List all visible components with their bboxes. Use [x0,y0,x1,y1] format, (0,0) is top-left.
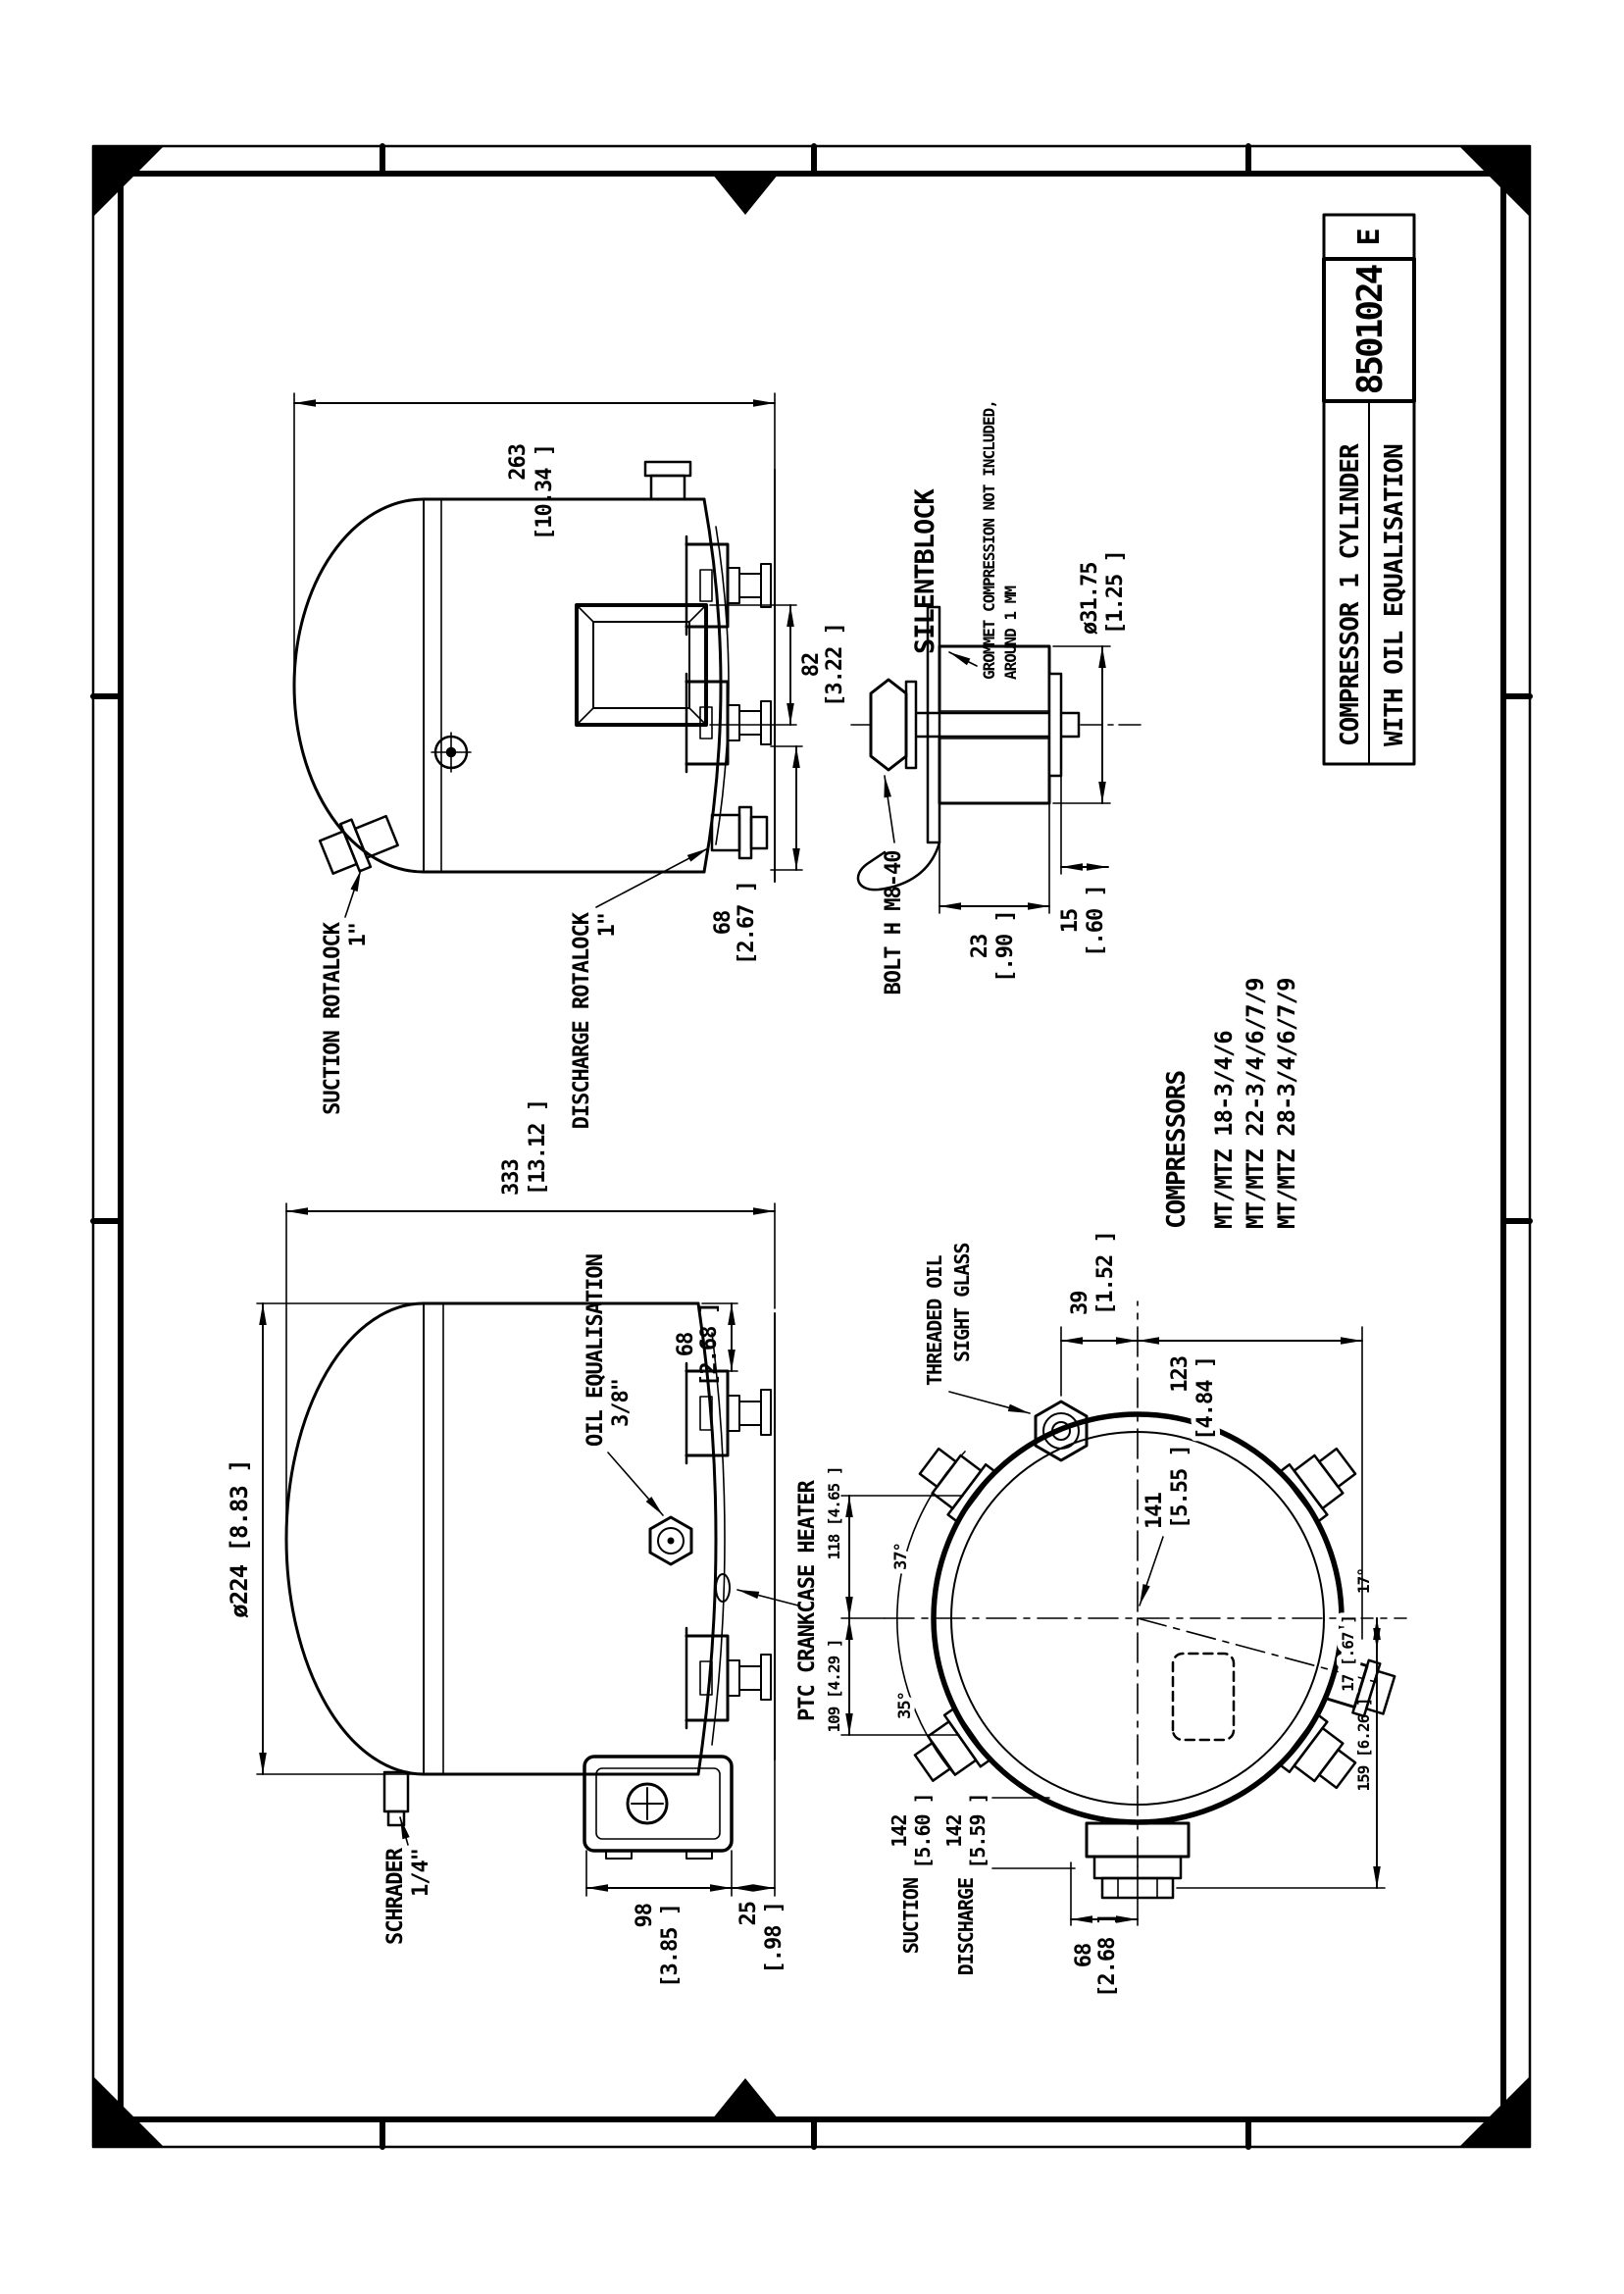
svg-text:333: 333 [499,1159,524,1196]
suction-rotalock-fitting [317,807,401,881]
oil-equalisation-fitting [650,1517,691,1564]
svg-text:109 [4.29 ]: 109 [4.29 ] [825,1640,843,1733]
svg-text:THREADED OIL: THREADED OIL [923,1255,946,1386]
revision-code: E [1352,229,1387,245]
dim-grommet-height: 23 [.90 ] [939,803,1049,983]
corner-mark [93,2076,164,2147]
svg-text:98: 98 [633,1904,657,1928]
drawing-page: COMPRESSOR 1 CYLINDER WITH OIL EQUALISAT… [0,0,1624,2294]
svg-text:DISCHARGE: DISCHARGE [954,1878,978,1975]
svg-text:1": 1" [595,913,620,938]
service-valve-stub [645,462,690,499]
dim-terminal-height: 98 [3.85 ] 25 [.98 ] [586,1759,787,1988]
svg-text:[.90 ]: [.90 ] [993,910,1018,982]
mounting-feet-b [686,1363,771,1728]
centering-mark [712,2078,779,2119]
port-height-labels: SUCTION 142 [5.60 ] DISCHARGE 142 [5.59 … [888,1793,1075,1975]
svg-text:[5.60 ]: [5.60 ] [911,1793,935,1868]
dim-discharge-offset: 17 [.67 ] 17° [1339,1568,1377,1692]
silentblock-heading: SILENTBLOCK [910,487,940,654]
svg-text:ø31.75: ø31.75 [1078,563,1102,635]
drawing-number: 8501024 [1350,264,1391,394]
svg-text:159 [6.26 ]: 159 [6.26 ] [1354,1699,1373,1792]
dim-terminal-box: 82 [3.22 ] [710,605,847,725]
border-ticks [93,146,1530,2147]
svg-text:[5.55 ]: [5.55 ] [1168,1445,1193,1529]
side-view-b: ø224 [8.83 ] 333 [13.12 ] 68 [2.68 ] 98 … [226,1099,820,1988]
bolt-label: BOLT H M8-40 [882,776,906,994]
suction-rotalock-label: SUCTION ROTALOCK 1" [321,870,371,1115]
title-block: COMPRESSOR 1 CYLINDER WITH OIL EQUALISAT… [1324,215,1414,764]
sight-glass-label: THREADED OIL SIGHT GLASS [923,1244,1030,1413]
svg-text:AROUND 1 MM: AROUND 1 MM [1001,586,1020,680]
discharge-rotalock-label: DISCHARGE ROTALOCK 1" [570,848,708,1129]
drawing-sheet: COMPRESSOR 1 CYLINDER WITH OIL EQUALISAT… [0,0,1624,2294]
hidden-terminal-box [1173,1654,1234,1740]
svg-text:SUCTION ROTALOCK: SUCTION ROTALOCK [321,921,345,1115]
compressor-model: MT/MTZ 18-3/4/6 [1210,1031,1238,1229]
svg-text:1": 1" [346,923,371,947]
crankcase-heater-boss [716,1574,730,1602]
svg-text:[4.84 ]: [4.84 ] [1193,1356,1218,1441]
compressor-model: MT/MTZ 28-3/4/6/7/9 [1273,978,1300,1229]
top-view: 159 [6.26 ] 17 [.67 ] 17° 68 [2.68 ] 39 … [825,1231,1406,1998]
silentblock-assembly [858,607,1079,890]
svg-text:123: 123 [1168,1356,1193,1393]
svg-text:68: 68 [1072,1944,1096,1968]
svg-text:263: 263 [506,444,531,481]
compressor-list-heading: COMPRESSORS [1162,1070,1192,1229]
svg-text:39: 39 [1068,1292,1092,1316]
svg-text:DISCHARGE ROTALOCK: DISCHARGE ROTALOCK [570,911,594,1129]
schrader-valve [384,1772,408,1825]
silentblock-detail: SILENTBLOCK GROMMET COMPRESSION NOT INCL… [851,400,1142,994]
dim-shell-dia: ø224 [8.83 ] [226,1303,416,1774]
compressor-model: MT/MTZ 22-3/4/6/7/9 [1242,978,1269,1229]
drawing-subtitle: WITH OIL EQUALISATION [1380,444,1409,746]
svg-text:141: 141 [1142,1493,1167,1529]
svg-text:OIL EQUALISATION: OIL EQUALISATION [584,1254,608,1447]
svg-text:BOLT H M8-40: BOLT H M8-40 [882,851,906,995]
svg-text:37°: 37° [891,1543,911,1570]
svg-text:35°: 35° [895,1692,915,1719]
svg-text:15: 15 [1058,909,1083,934]
dim-suction-height: 68 [2.68 ] [1071,1862,1138,1998]
svg-text:[2.67 ]: [2.67 ] [735,881,759,965]
svg-text:ø224 [8.83 ]: ø224 [8.83 ] [226,1459,253,1617]
svg-text:118 [4.65 ]: 118 [4.65 ] [825,1467,843,1560]
svg-text:68: 68 [674,1333,698,1357]
dome-plug [431,733,471,772]
svg-text:[13.12 ]: [13.12 ] [526,1099,550,1196]
svg-text:[2.68 ]: [2.68 ] [697,1302,722,1387]
discharge-rotalock-fitting [712,807,767,858]
svg-text:82: 82 [799,653,824,678]
corner-mark [93,146,164,217]
svg-text:68: 68 [711,911,736,936]
svg-text:17 [.67 ]: 17 [.67 ] [1339,1615,1357,1692]
svg-text:PTC CRANKCASE HEATER: PTC CRANKCASE HEATER [795,1479,820,1721]
svg-text:142: 142 [942,1814,966,1847]
svg-text:[1.25 ]: [1.25 ] [1103,550,1128,635]
dim-pad-spacing: 109 [4.29 ] 118 [4.65 ] 37° 35° [825,1467,963,1735]
grommet-note: GROMMET COMPRESSION NOT INCLUDED, AROUND… [949,400,1020,680]
svg-text:GROMMET COMPRESSION NOT INCLUD: GROMMET COMPRESSION NOT INCLUDED, [980,400,998,680]
svg-text:[.98 ]: [.98 ] [762,1902,787,1973]
centering-mark [712,174,779,215]
dim-overall-length-a: 263 [10.34 ] [294,393,775,678]
heater-label: PTC CRANKCASE HEATER [737,1479,820,1721]
svg-text:142: 142 [888,1814,911,1847]
corner-mark [1459,2076,1530,2147]
dim-grommet-dia: ø31.75 [1.25 ] [1053,550,1128,803]
svg-text:23: 23 [968,935,992,959]
compressor-list: COMPRESSORS MT/MTZ 18-3/4/6 MT/MTZ 22-3/… [1162,978,1300,1229]
oil-equalisation-label: OIL EQUALISATION 3/8" [584,1254,663,1515]
schrader-label: SCHRADER 1/4" [383,1817,433,1945]
svg-text:17°: 17° [1354,1568,1373,1594]
svg-text:[1.52 ]: [1.52 ] [1093,1231,1118,1315]
svg-text:[2.68 ]: [2.68 ] [1095,1913,1120,1998]
svg-text:[5.59 ]: [5.59 ] [966,1793,990,1868]
sheet-frame [93,146,1530,2147]
drawing-title: COMPRESSOR 1 CYLINDER [1336,443,1365,746]
svg-text:[3.22 ]: [3.22 ] [823,623,847,707]
terminal-box-b [584,1757,732,1859]
svg-text:1/4": 1/4" [409,1849,433,1897]
svg-text:25: 25 [736,1902,761,1926]
svg-text:SUCTION: SUCTION [899,1878,923,1954]
svg-text:3/8": 3/8" [609,1379,634,1427]
dim-radius-141: 141 [5.55 ] [1140,1445,1193,1606]
side-view-a: 263 [10.34 ] 82 [3.22 ] 68 [2.67 ] SUCTI… [294,393,847,1129]
svg-text:[10.34 ]: [10.34 ] [533,444,557,540]
svg-text:SCHRADER: SCHRADER [383,1847,408,1945]
corner-mark [1459,146,1530,217]
svg-text:[3.85 ]: [3.85 ] [658,1904,683,1988]
svg-text:SIGHT GLASS: SIGHT GLASS [950,1244,974,1362]
svg-text:[.60 ]: [.60 ] [1084,885,1108,956]
